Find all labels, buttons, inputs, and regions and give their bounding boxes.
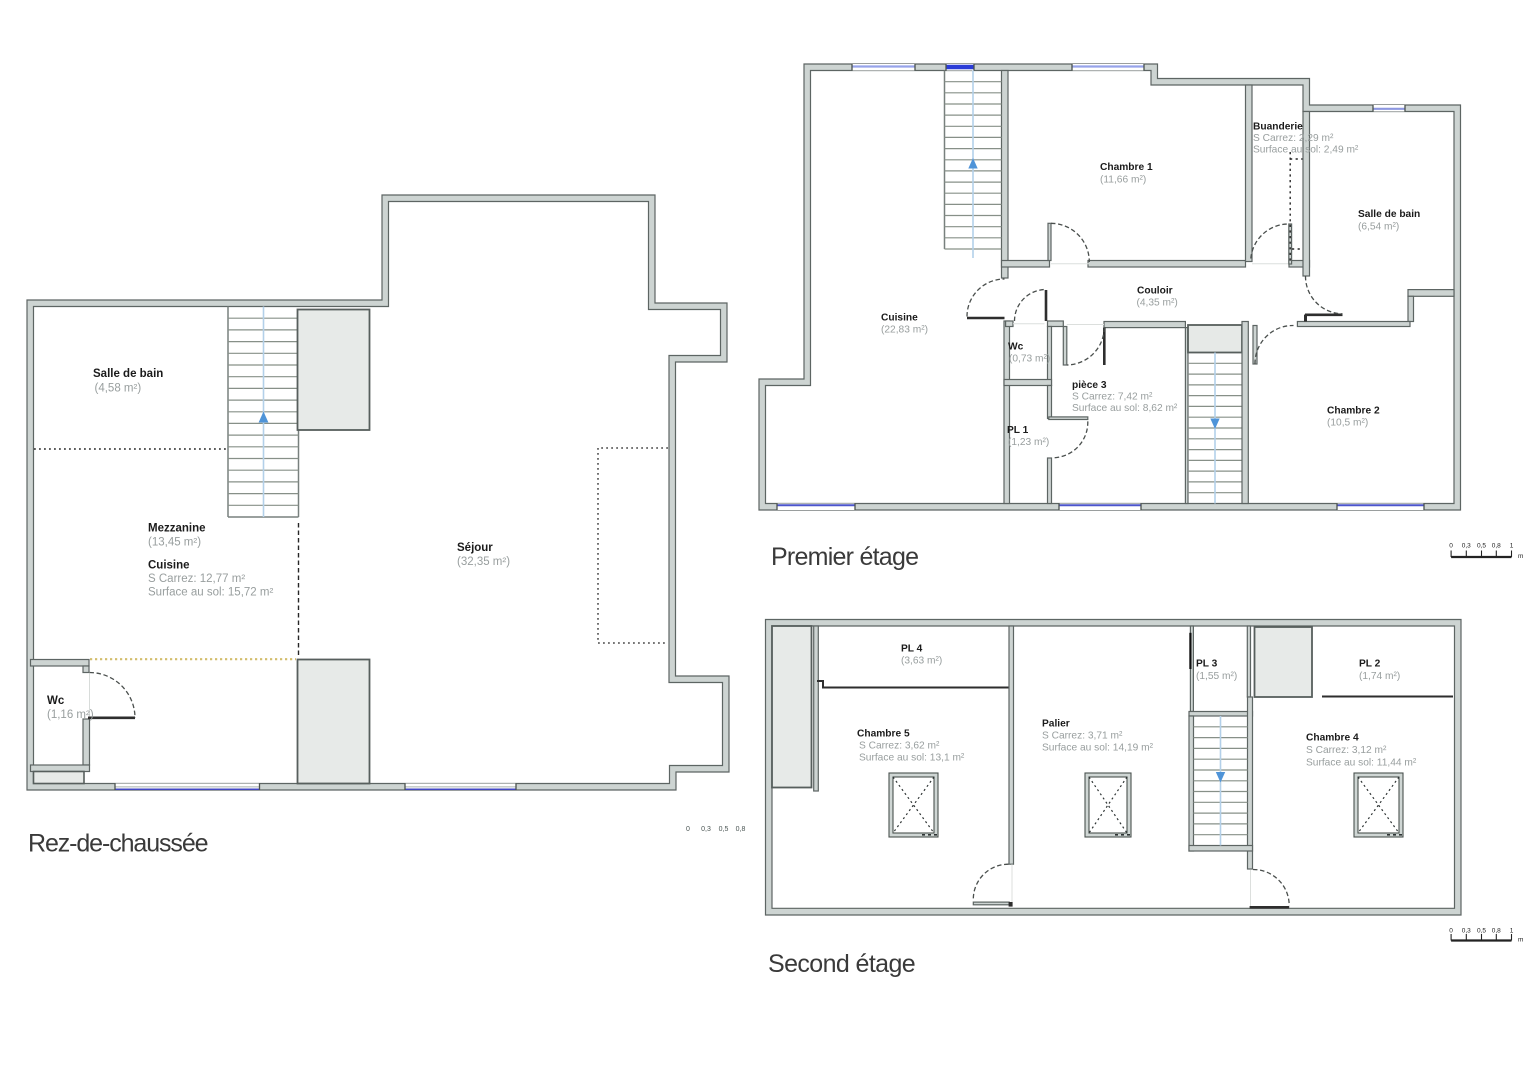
svg-text:Chambre 4: Chambre 4: [1306, 733, 1359, 744]
svg-text:(22,83 m²): (22,83 m²): [881, 325, 928, 336]
svg-text:0,3: 0,3: [701, 826, 711, 833]
svg-text:S Carrez: 3,71 m²: S Carrez: 3,71 m²: [1042, 731, 1123, 742]
svg-text:Premier étage: Premier étage: [771, 543, 918, 571]
svg-text:Chambre 2: Chambre 2: [1327, 405, 1380, 416]
svg-text:Surface au sol: 11,44 m²: Surface au sol: 11,44 m²: [1306, 758, 1417, 769]
svg-text:(1,16 m²): (1,16 m²): [47, 709, 94, 721]
svg-text:0,5: 0,5: [719, 826, 729, 833]
svg-text:0,3: 0,3: [1462, 928, 1471, 935]
svg-text:m: m: [1518, 937, 1523, 944]
svg-text:0,5: 0,5: [1477, 928, 1486, 935]
svg-text:S Carrez: 3,12 m²: S Carrez: 3,12 m²: [1306, 745, 1387, 756]
svg-text:0,5: 0,5: [1477, 543, 1486, 550]
svg-text:0,8: 0,8: [1492, 928, 1501, 935]
svg-text:S Carrez: 7,42 m²: S Carrez: 7,42 m²: [1072, 392, 1153, 403]
svg-text:(1,74 m²): (1,74 m²): [1359, 671, 1400, 682]
svg-text:Wc: Wc: [47, 695, 65, 707]
svg-text:pièce 3: pièce 3: [1072, 380, 1107, 391]
svg-text:0: 0: [1449, 543, 1453, 550]
svg-text:Séjour: Séjour: [457, 542, 493, 554]
svg-text:0: 0: [1449, 928, 1453, 935]
svg-text:Mezzanine: Mezzanine: [148, 523, 206, 535]
svg-text:Salle de bain: Salle de bain: [93, 368, 163, 380]
svg-text:Rez-de-chaussée: Rez-de-chaussée: [28, 830, 208, 858]
svg-text:(0,73 m²): (0,73 m²): [1009, 354, 1050, 365]
svg-text:0,3: 0,3: [1462, 543, 1471, 550]
svg-text:(32,35 m²): (32,35 m²): [457, 556, 510, 568]
svg-text:Wc: Wc: [1008, 342, 1024, 353]
svg-text:Surface au sol: 14,19 m²: Surface au sol: 14,19 m²: [1042, 743, 1154, 754]
svg-text:(13,45 m²): (13,45 m²): [148, 537, 201, 549]
svg-text:1: 1: [1510, 543, 1514, 550]
svg-text:Chambre 1: Chambre 1: [1100, 162, 1153, 173]
svg-text:(4,58 m²): (4,58 m²): [95, 383, 142, 395]
svg-text:(1,23 m²): (1,23 m²): [1008, 437, 1049, 448]
svg-text:1: 1: [1510, 928, 1514, 935]
svg-text:Buanderie: Buanderie: [1253, 122, 1303, 133]
svg-text:(3,63 m²): (3,63 m²): [901, 656, 942, 667]
svg-text:m: m: [1518, 553, 1523, 560]
svg-text:(1,55 m²): (1,55 m²): [1196, 671, 1237, 682]
svg-text:Cuisine: Cuisine: [148, 560, 190, 572]
svg-text:0,8: 0,8: [736, 826, 746, 833]
svg-text:PL 1: PL 1: [1007, 425, 1029, 436]
svg-text:Surface au sol: 2,49 m²: Surface au sol: 2,49 m²: [1253, 145, 1359, 156]
svg-text:(4,35 m²): (4,35 m²): [1137, 298, 1178, 309]
svg-text:PL 2: PL 2: [1359, 659, 1381, 670]
svg-text:S Carrez: 12,77 m²: S Carrez: 12,77 m²: [148, 573, 245, 585]
svg-text:0: 0: [686, 826, 690, 833]
svg-text:Surface au sol: 15,72 m²: Surface au sol: 15,72 m²: [148, 587, 273, 599]
svg-text:Couloir: Couloir: [1137, 286, 1173, 297]
svg-text:PL 4: PL 4: [901, 644, 923, 655]
svg-text:Surface au sol: 13,1 m²: Surface au sol: 13,1 m²: [859, 753, 965, 764]
svg-text:Second étage: Second étage: [768, 950, 915, 978]
svg-text:PL 3: PL 3: [1196, 659, 1218, 670]
svg-text:Chambre 5: Chambre 5: [857, 729, 910, 740]
svg-text:(11,66 m²): (11,66 m²): [1100, 175, 1146, 186]
svg-text:(6,54 m²): (6,54 m²): [1358, 222, 1399, 233]
svg-text:Palier: Palier: [1042, 719, 1070, 730]
svg-text:Surface au sol: 8,62 m²: Surface au sol: 8,62 m²: [1072, 403, 1178, 414]
svg-text:S Carrez: 3,62 m²: S Carrez: 3,62 m²: [859, 741, 940, 752]
svg-text:Cuisine: Cuisine: [881, 312, 918, 323]
svg-text:0,8: 0,8: [1492, 543, 1501, 550]
svg-text:(10,5 m²): (10,5 m²): [1327, 418, 1368, 429]
svg-text:S Carrez: 2,29 m²: S Carrez: 2,29 m²: [1253, 133, 1334, 144]
svg-text:Salle de bain: Salle de bain: [1358, 209, 1420, 220]
